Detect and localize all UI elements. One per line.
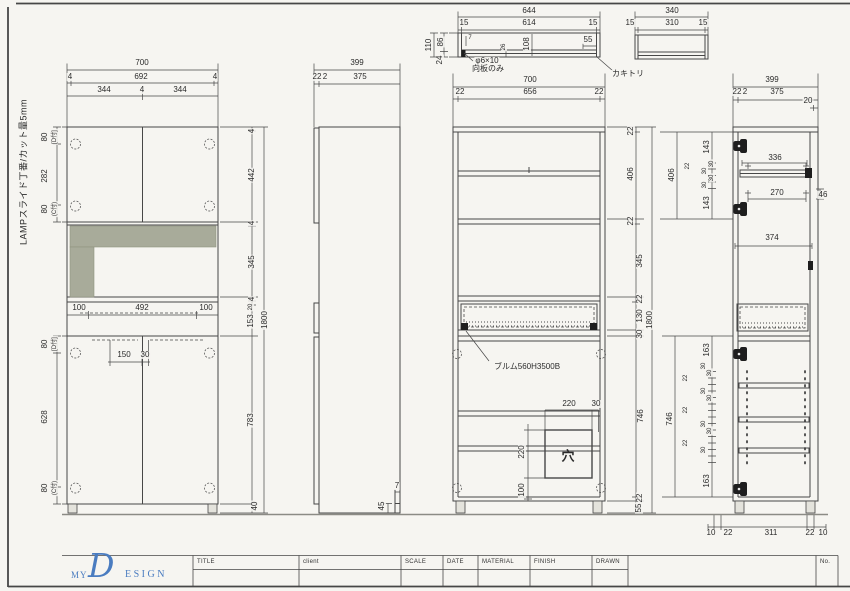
hinge-note: LAMPスライド丁番/カット量5mm [20, 98, 29, 246]
dim-label: 20 [248, 303, 254, 312]
dim-label: 22 [636, 294, 644, 305]
titleblock-scale-label: SCALE [405, 559, 426, 565]
dim-label: 336 [767, 154, 782, 162]
dim-label: 163 [703, 342, 711, 357]
dim-label: 80 [41, 339, 49, 350]
logo-esign: ESIGN [125, 569, 167, 580]
dim-label: 80 [41, 132, 49, 143]
dim-label: 15 [698, 19, 709, 27]
side-elevation-linework [314, 64, 400, 514]
dim-label: 30 [707, 427, 713, 436]
titleblock-no-label: No. [820, 559, 830, 565]
dim-label: 220 [561, 400, 576, 408]
side-panel-hardware-linework [662, 74, 826, 531]
dim-label: 22 [455, 88, 466, 96]
dim-label: 406 [668, 167, 676, 182]
dim-label: 2 [322, 73, 328, 81]
dim-label: 100 [198, 304, 213, 312]
dim-label: 406 [627, 166, 635, 181]
dim-label: 4 [212, 73, 218, 81]
logo-my: MY [71, 570, 88, 580]
dim-label: 30 [707, 369, 713, 378]
dim-label: (C付) [52, 201, 58, 217]
dim-label: 399 [764, 76, 779, 84]
dim-label: 344 [96, 86, 111, 94]
dim-label: 345 [248, 254, 256, 269]
dim-label: 30 [709, 174, 715, 183]
dim-label: 143 [703, 195, 711, 210]
dim-label: 345 [636, 253, 644, 268]
blum-note: ブルム560H3500B [493, 363, 561, 371]
dim-label: 22 [683, 374, 689, 383]
dim-label: 45 [378, 501, 386, 512]
dim-label: 270 [769, 189, 784, 197]
dim-label: 2 [742, 88, 748, 96]
dim-label: 24 [436, 55, 444, 66]
carcass-elevation-linework [453, 74, 734, 514]
dim-label: 80 [41, 204, 49, 215]
dim-label: 30 [702, 167, 708, 176]
dim-label: 55 [583, 36, 594, 44]
dim-label: 153 [247, 313, 255, 328]
dim-label: 143 [703, 139, 711, 154]
dim-label: 15 [459, 19, 470, 27]
dim-label: [D付] [52, 129, 58, 145]
dim-label: 1800 [646, 310, 654, 330]
dim-label: 22 [627, 216, 635, 227]
dim-label: 20 [803, 97, 814, 105]
dim-label: 30 [140, 351, 151, 359]
titleblock-drawn-label: DRAWN [596, 559, 620, 565]
dim-label: 628 [41, 409, 49, 424]
dim-label: 10 [706, 529, 717, 537]
titleblock-date-label: DATE [447, 559, 464, 565]
dim-label: 15 [625, 19, 636, 27]
dim-label: 7 [467, 35, 472, 41]
dim-label: 80 [41, 483, 49, 494]
dim-label: 340 [664, 7, 679, 15]
dim-label: 108 [523, 36, 531, 51]
sheet-frame [8, 4, 850, 588]
dim-label: 310 [664, 19, 679, 27]
dim-label: 614 [521, 19, 536, 27]
dim-label: 344 [172, 86, 187, 94]
logo-d-glyph: D [88, 546, 114, 585]
dim-label: 22 [805, 529, 816, 537]
dim-label: 311 [764, 529, 779, 537]
dim-label: 220 [518, 444, 526, 459]
dim-label: 163 [703, 473, 711, 488]
dim-label: 30 [709, 160, 715, 169]
front-elevation-doors-linework [53, 64, 268, 514]
dim-label: 22 [723, 529, 734, 537]
dim-label: [D付] [52, 336, 58, 352]
notch-note: カキトリ [611, 70, 645, 78]
drawing-sheet: LAMPスライド丁番/カット量5mm70046924344434480[D付]2… [0, 0, 850, 591]
dim-label: 746 [637, 408, 645, 423]
dim-label: 100 [71, 304, 86, 312]
dim-label: 4 [67, 73, 73, 81]
titleblock-title-label: TITLE [197, 559, 215, 565]
dim-label: 4 [248, 296, 256, 302]
dim-label: 55 [635, 503, 643, 514]
dim-label: 4 [248, 128, 256, 134]
dim-label: 656 [522, 88, 537, 96]
dim-label: 399 [349, 59, 364, 67]
dim-label: 22 [594, 88, 605, 96]
dim-label: 26 [501, 43, 507, 52]
dim-label: (C付) [52, 480, 58, 496]
dim-label: 150 [116, 351, 131, 359]
dim-label: 442 [248, 167, 256, 182]
titleblock-finish-label: FINISH [534, 559, 555, 565]
dim-label: 1800 [261, 310, 269, 330]
dim-label: 30 [702, 181, 708, 190]
dim-label: 374 [764, 234, 779, 242]
dim-label: 10 [818, 529, 829, 537]
dim-label: 700 [522, 76, 537, 84]
dim-label: 30 [707, 394, 713, 403]
dim-label: 492 [134, 304, 149, 312]
dim-label: 4 [248, 220, 256, 226]
dim-label: 7 [394, 482, 400, 490]
dim-label: 30 [701, 446, 707, 455]
dim-label: 375 [769, 88, 784, 96]
dim-label: 700 [134, 59, 149, 67]
dim-label: 375 [352, 73, 367, 81]
titleblock-client-label: client [303, 559, 319, 565]
dim-label: 30 [636, 329, 644, 340]
dim-label: 46 [818, 191, 829, 199]
dim-label: 22 [683, 406, 689, 415]
dim-label: 783 [247, 412, 255, 427]
dim-label: 15 [588, 19, 599, 27]
dim-label: 100 [518, 482, 526, 497]
hole-mark: 穴 [560, 450, 575, 463]
dim-label: 22 [685, 162, 691, 171]
dim-label: 644 [521, 7, 536, 15]
dim-label: 30 [591, 400, 602, 408]
dim-label: 22 [627, 126, 635, 137]
dim-label: 22 [683, 439, 689, 448]
dim-label: 86 [437, 37, 445, 48]
dim-label: 40 [251, 501, 259, 512]
dim-label: 692 [133, 73, 148, 81]
dim-label: 130 [636, 308, 644, 323]
dim-label: 4 [139, 86, 145, 94]
backboard-note: 向板のみ [471, 65, 505, 73]
dim-label: 282 [41, 168, 49, 183]
titleblock-material-label: MATERIAL [482, 559, 514, 565]
logo: MY D ESIGN [64, 553, 204, 587]
dim-label: 110 [425, 38, 433, 53]
dim-label: 746 [666, 411, 674, 426]
